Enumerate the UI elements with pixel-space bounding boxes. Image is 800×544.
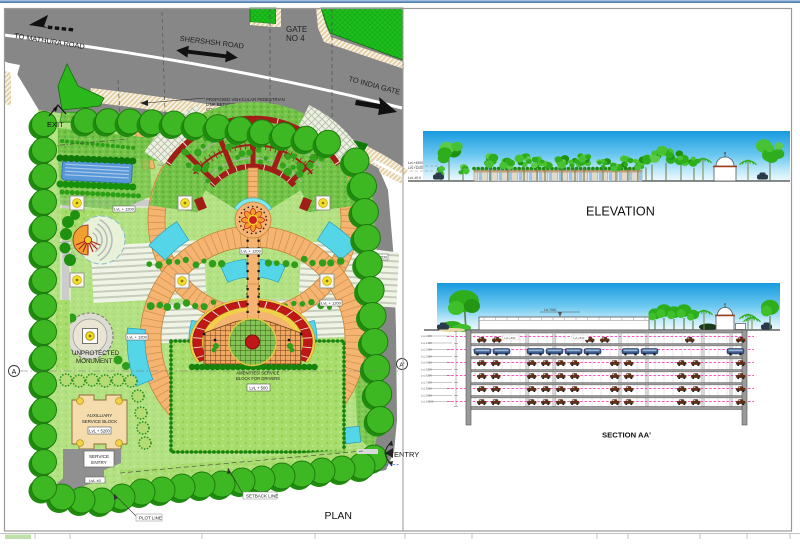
svg-text:LvL-2200: LvL-2200 — [421, 348, 432, 352]
svg-text:BLOCK FOR DRIVERS: BLOCK FOR DRIVERS — [236, 376, 280, 381]
svg-text:NO 4: NO 4 — [286, 34, 305, 43]
svg-text:SERVICE BLOCK: SERVICE BLOCK — [82, 419, 117, 424]
svg-text:LvL+4500: LvL+4500 — [408, 161, 423, 165]
svg-text:LvL + 1200: LvL + 1200 — [321, 301, 342, 306]
svg-text:LvL + 1200: LvL + 1200 — [114, 207, 135, 212]
svg-text:LvL-10200: LvL-10200 — [421, 400, 434, 404]
svg-text:LvL ±0.0: LvL ±0.0 — [408, 176, 421, 180]
svg-text:AUXILLIARY: AUXILLIARY — [87, 413, 112, 418]
svg-text:GATE: GATE — [286, 25, 307, 34]
svg-text:SERVICE: SERVICE — [89, 454, 109, 459]
svg-text:MONUMENT: MONUMENT — [76, 358, 113, 365]
svg-text:ENTRY: ENTRY — [91, 460, 107, 465]
svg-text:PLAN: PLAN — [325, 510, 352, 522]
svg-text:LvL + 5200: LvL + 5200 — [89, 428, 110, 433]
svg-text:A': A' — [399, 363, 404, 369]
svg-text:SECTION AA': SECTION AA' — [602, 431, 651, 440]
svg-text:LvL+500: LvL+500 — [574, 336, 585, 340]
svg-text:SETBACK LINE: SETBACK LINE — [246, 494, 278, 499]
svg-text:LvL + 1200: LvL + 1200 — [241, 249, 262, 254]
svg-text:LvL-0200: LvL-0200 — [421, 334, 432, 338]
svg-text:EXIT: EXIT — [47, 120, 64, 129]
svg-text:LvL-6200: LvL-6200 — [421, 374, 432, 378]
svg-text:LvL + 500: LvL + 500 — [249, 385, 268, 390]
svg-text:LvL-4200: LvL-4200 — [421, 361, 432, 365]
svg-text:ELEVATION: ELEVATION — [586, 205, 655, 219]
svg-text:LvL-9200: LvL-9200 — [421, 394, 432, 398]
svg-text:LvL-7200: LvL-7200 — [421, 381, 432, 385]
svg-text:LvL+500: LvL+500 — [544, 308, 557, 312]
svg-text:LvL-5200: LvL-5200 — [421, 368, 432, 372]
svg-text:LvL+500: LvL+500 — [505, 336, 516, 340]
svg-text:PLOT LINE: PLOT LINE — [139, 516, 162, 521]
svg-text:LvL+1200: LvL+1200 — [408, 166, 423, 170]
svg-text:UNPROTECTED: UNPROTECTED — [72, 350, 120, 357]
svg-text:ENTRY: ENTRY — [394, 450, 419, 459]
svg-text:LvL-1200: LvL-1200 — [421, 341, 432, 345]
svg-text:A: A — [12, 369, 17, 376]
svg-text:LvL-3200: LvL-3200 — [421, 355, 432, 359]
svg-text:LvL-8200: LvL-8200 — [421, 387, 432, 391]
svg-text:LvL ±0: LvL ±0 — [89, 478, 102, 483]
svg-text:LvL + 1200: LvL + 1200 — [127, 335, 148, 340]
